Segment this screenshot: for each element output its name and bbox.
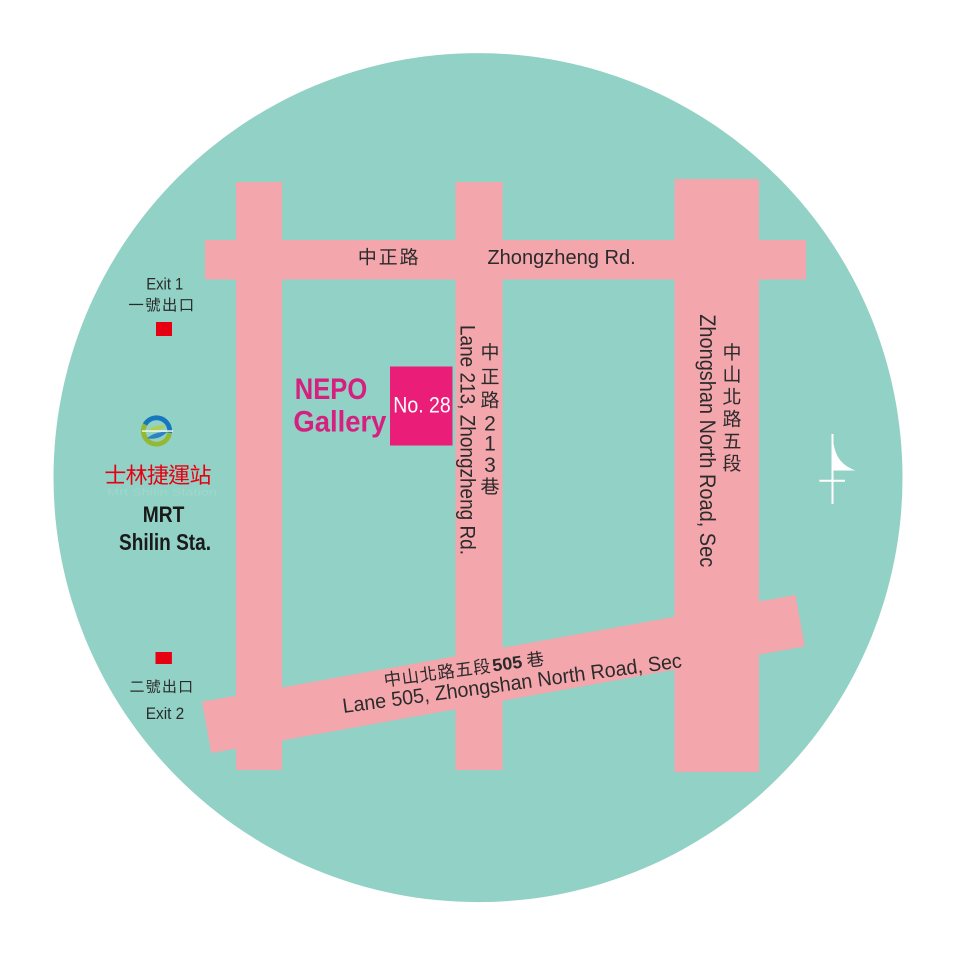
svg-text:Exit 1: Exit 1 <box>146 276 183 294</box>
svg-text:Gallery: Gallery <box>293 406 386 439</box>
svg-text:Lane 213, Zhongzheng Rd.: Lane 213, Zhongzheng Rd. <box>456 325 480 555</box>
svg-text:Exit 2: Exit 2 <box>146 705 185 723</box>
svg-text:Zhongshan North Road, Sec: Zhongshan North Road, Sec <box>695 314 720 567</box>
svg-text:Mrt Shilin Station: Mrt Shilin Station <box>107 488 217 499</box>
svg-text:MRT: MRT <box>143 502 185 527</box>
svg-text:3: 3 <box>484 454 496 477</box>
svg-text:1: 1 <box>484 432 496 455</box>
svg-text:Zhongzheng Rd.: Zhongzheng Rd. <box>487 247 635 269</box>
svg-text:Shilin Sta.: Shilin Sta. <box>119 529 211 555</box>
svg-text:No. 28: No. 28 <box>393 393 451 418</box>
svg-text:NEPO: NEPO <box>295 373 367 406</box>
